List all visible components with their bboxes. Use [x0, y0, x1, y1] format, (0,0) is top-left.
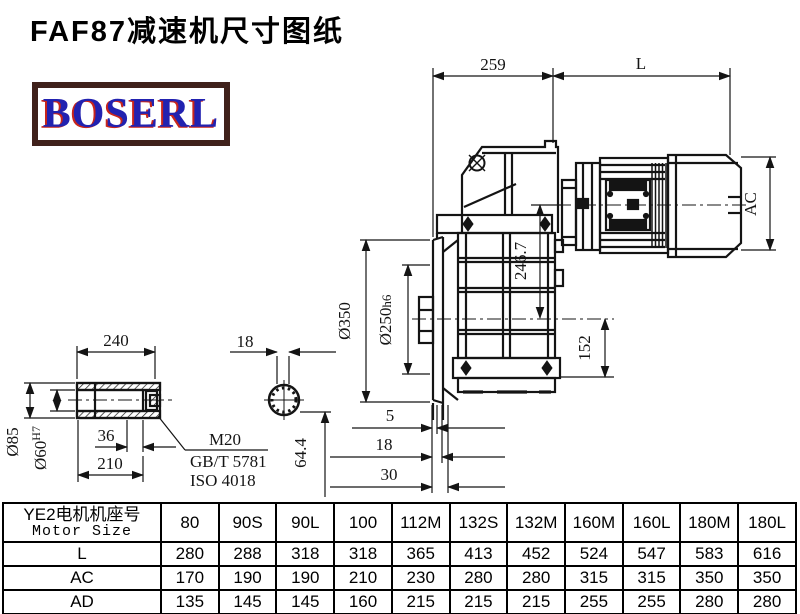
cell: 160	[334, 590, 392, 614]
shaft-dimension-lines	[24, 346, 336, 497]
column-header: 180M	[680, 503, 738, 542]
dim-240: 240	[103, 331, 129, 350]
column-header: 112M	[392, 503, 450, 542]
cell: 583	[680, 542, 738, 566]
header-motor-size: YE2电机机座号 Motor Size	[3, 503, 161, 542]
cell: 255	[565, 590, 623, 614]
dim-AC: AC	[741, 192, 760, 216]
dim-30: 30	[381, 465, 398, 484]
column-header: 90L	[276, 503, 334, 542]
cell: 190	[276, 566, 334, 590]
dim-259: 259	[480, 55, 506, 74]
shaft-section-circle	[264, 380, 304, 420]
dim-210: 210	[97, 454, 123, 473]
cell: 318	[276, 542, 334, 566]
dim-350: Ø350	[335, 302, 354, 340]
cell: 315	[623, 566, 681, 590]
column-header: 160L	[623, 503, 681, 542]
page: FAF87减速机尺寸图纸 BOSERL	[0, 0, 800, 614]
cell: 215	[450, 590, 508, 614]
cell: 170	[161, 566, 219, 590]
dim-246-7: 246.7	[511, 241, 530, 280]
cell: 288	[219, 542, 277, 566]
column-header: 160M	[565, 503, 623, 542]
header-motor-size-en: Motor Size	[4, 524, 160, 540]
column-header: 180L	[738, 503, 796, 542]
cell: 365	[392, 542, 450, 566]
row-label-AC: AC	[3, 566, 161, 590]
gearbox-outline	[419, 141, 563, 420]
column-header: 132S	[450, 503, 508, 542]
label-iso-4018: ISO 4018	[190, 471, 256, 490]
label-gbt-5781: GB/T 5781	[190, 452, 267, 471]
cell: 315	[565, 566, 623, 590]
table-row: AC 170 190 190 210 230 280 280 315 315 3…	[3, 566, 796, 590]
cell: 280	[507, 566, 565, 590]
cell: 190	[219, 566, 277, 590]
dim-L: L	[636, 54, 646, 73]
table-header-row: YE2电机机座号 Motor Size 80 90S 90L 100 112M …	[3, 503, 796, 542]
dim-152: 152	[575, 335, 594, 361]
cell: 616	[738, 542, 796, 566]
cell: 280	[738, 590, 796, 614]
cell: 135	[161, 590, 219, 614]
row-label-AD: AD	[3, 590, 161, 614]
motor-dimension-table: YE2电机机座号 Motor Size 80 90S 90L 100 112M …	[2, 502, 797, 614]
dim-36: 36	[98, 426, 115, 445]
cell: 145	[219, 590, 277, 614]
cell: 350	[738, 566, 796, 590]
cell: 255	[623, 590, 681, 614]
cell: 215	[392, 590, 450, 614]
cell: 413	[450, 542, 508, 566]
dimension-lines	[330, 68, 776, 493]
cell: 280	[680, 590, 738, 614]
dim-64-4: 64.4	[291, 438, 310, 468]
cell: 210	[334, 566, 392, 590]
cell: 215	[507, 590, 565, 614]
cell: 524	[565, 542, 623, 566]
cell: 230	[392, 566, 450, 590]
motor-outline	[562, 155, 741, 257]
cell: 318	[334, 542, 392, 566]
column-header: 132M	[507, 503, 565, 542]
dimension-drawing: 259 L AC 246.7 152 Ø350 Ø250h6 5 18 30	[0, 0, 800, 500]
cell: 280	[161, 542, 219, 566]
cell: 547	[623, 542, 681, 566]
cell: 350	[680, 566, 738, 590]
column-header: 90S	[219, 503, 277, 542]
table-row: L 280 288 318 318 365 413 452 524 547 58…	[3, 542, 796, 566]
dim-85: Ø85	[3, 427, 22, 456]
dim-18-offset: 18	[376, 435, 393, 454]
table-row: AD 135 145 145 160 215 215 215 255 255 2…	[3, 590, 796, 614]
label-m20: M20	[209, 430, 241, 449]
cell: 145	[276, 590, 334, 614]
dim-18-shaft: 18	[237, 332, 254, 351]
dim-5: 5	[386, 406, 395, 425]
row-label-L: L	[3, 542, 161, 566]
cell: 280	[450, 566, 508, 590]
dim-60h7: Ø60H7	[29, 426, 50, 470]
dim-250h6: Ø250h6	[376, 294, 395, 345]
cell: 452	[507, 542, 565, 566]
header-motor-size-cn: YE2电机机座号	[4, 505, 160, 524]
column-header: 100	[334, 503, 392, 542]
column-header: 80	[161, 503, 219, 542]
